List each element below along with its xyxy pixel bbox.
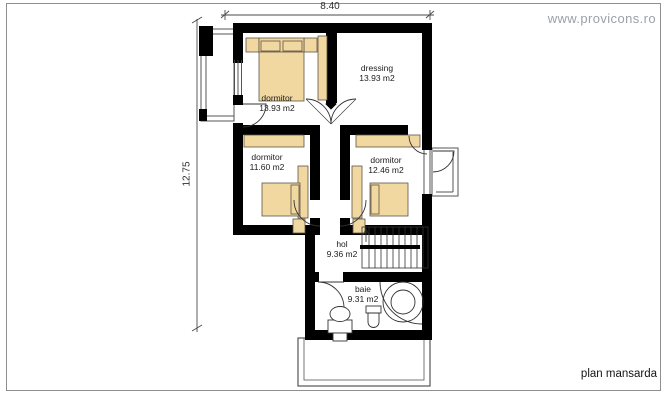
pillow (261, 41, 280, 51)
toilet-tank (366, 306, 381, 313)
pillow (371, 185, 379, 214)
room-area: 12.46 m2 (368, 166, 403, 176)
room-label-dressing: dressing 13.93 m2 (359, 64, 394, 83)
stair-rail (360, 245, 420, 249)
room-label-hol: hol 9.36 m2 (327, 240, 358, 259)
sink-step (333, 333, 347, 341)
plan-title: plan mansarda (581, 368, 657, 380)
nightstand (293, 219, 305, 233)
room-label-baie: baie 9.31 m2 (348, 285, 379, 304)
floor-plan-drawing (0, 0, 668, 400)
room-label-dormitor-1: dormitor 13.93 m2 (259, 94, 294, 113)
room-area: 9.36 m2 (327, 250, 358, 260)
dimension-width-label: 8.40 (320, 1, 339, 12)
dimension-height-label: 12.75 (182, 161, 193, 186)
wardrobe (318, 36, 327, 100)
pillow (283, 41, 302, 51)
pillow (291, 185, 299, 214)
terrace (298, 338, 430, 386)
nightstand (246, 38, 259, 52)
closet (352, 166, 362, 218)
room-area: 11.60 m2 (250, 163, 285, 173)
website-watermark: www.provicons.ro (548, 11, 656, 26)
room-area: 13.93 m2 (259, 104, 294, 114)
room-label-dormitor-2: dormitor 11.60 m2 (250, 153, 285, 172)
room-area: 9.31 m2 (348, 295, 379, 305)
wardrobe (244, 135, 304, 147)
nightstand (304, 38, 317, 52)
room-label-dormitor-3: dormitor 12.46 m2 (368, 156, 403, 175)
wardrobe (356, 135, 420, 147)
room-area: 13.93 m2 (359, 74, 394, 84)
balcony-pillar (199, 26, 213, 56)
sink-icon (330, 307, 350, 322)
sink-pedestal (328, 320, 352, 333)
balcony-pillar (199, 109, 207, 121)
toilet-icon (368, 313, 379, 328)
